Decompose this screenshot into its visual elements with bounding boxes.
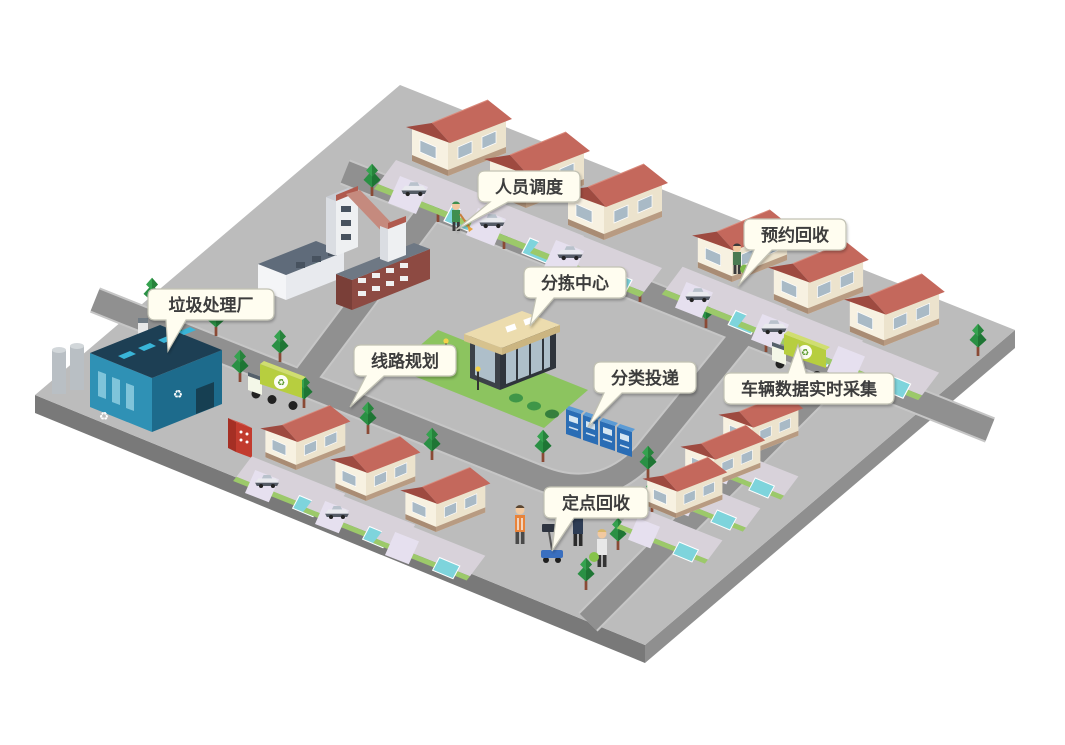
vehicle-realtime-data-label: 车辆数据实时采集 xyxy=(741,379,878,399)
recycle-icon: ♻ xyxy=(277,379,285,389)
recycle-icon: ♻ xyxy=(801,349,809,359)
recycle-icon: ♻ xyxy=(99,410,109,423)
fixed-point-recycling-label: 定点回收 xyxy=(562,493,630,513)
route-planning-label: 线路规划 xyxy=(371,351,439,371)
sorting-center-label: 分拣中心 xyxy=(541,273,609,293)
waste-management-illustration: ♻ ♻ ♻ ♻ xyxy=(0,0,1065,745)
personnel-dispatch-label: 人员调度 xyxy=(495,177,564,197)
isometric-city-scene: ♻ ♻ ♻ ♻ xyxy=(0,0,1065,745)
appointment-recycling-label: 预约回收 xyxy=(761,225,829,245)
waste-treatment-plant-label: 垃圾处理厂 xyxy=(169,295,254,315)
classified-delivery-label: 分类投递 xyxy=(611,368,679,388)
recycle-icon: ♻ xyxy=(173,388,183,401)
